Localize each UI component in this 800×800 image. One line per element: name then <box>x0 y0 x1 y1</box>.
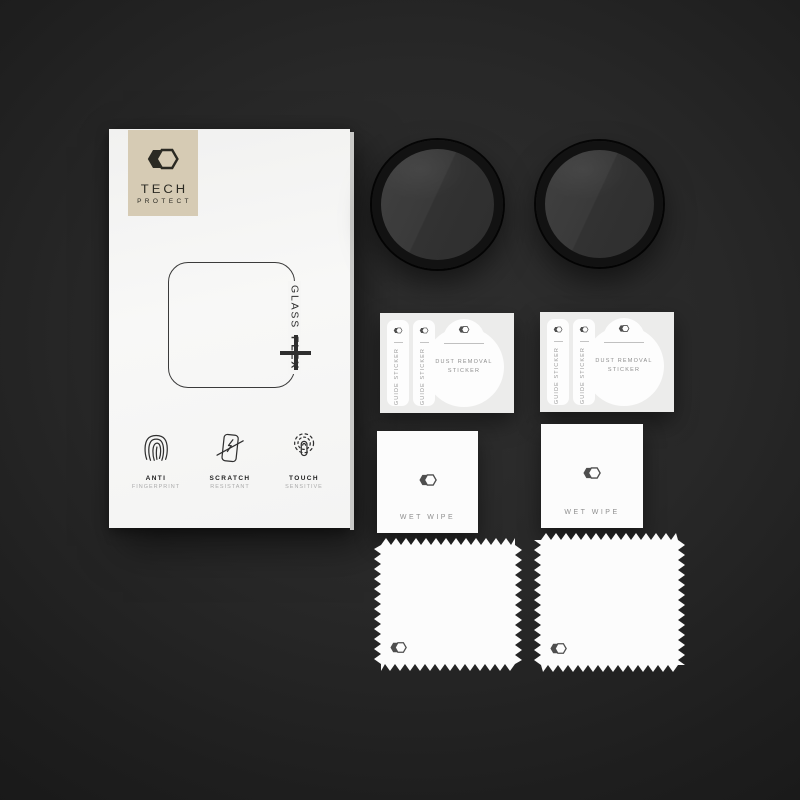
guide-sticker-label: GUIDE STICKER <box>555 347 561 404</box>
glass-protector-2 <box>536 141 663 267</box>
hexagon-icon <box>389 639 408 656</box>
sticker-sheet-2: GUIDE STICKER GUIDE STICKER DUST REMOVAL… <box>540 312 674 412</box>
hexagon-icon <box>553 325 563 334</box>
microfiber-cloth-1 <box>374 538 522 671</box>
microfiber-cloth-2 <box>534 533 685 672</box>
hexagon-icon <box>618 323 630 334</box>
fingerprint-icon <box>142 431 170 465</box>
feature-scratch-resistant: SCRATCH RESISTANT <box>195 431 265 490</box>
divider-line <box>604 342 644 343</box>
touch-sensitive-icon <box>289 431 319 465</box>
sticker-sheet-1: GUIDE STICKER GUIDE STICKER DUST REMOVAL… <box>380 313 514 413</box>
watch-screen-outline <box>168 262 295 388</box>
product-name-glass: GLASS <box>289 285 301 329</box>
scratch-resistant-icon <box>215 431 245 465</box>
feature-subtitle: FINGERPRINT <box>121 484 191 490</box>
product-photo-scene: TECH PROTECT GLASSFLEX ANTI FINGERPRINT <box>0 0 800 800</box>
feature-title: ANTI <box>121 475 191 482</box>
dust-removal-sticker: DUST REMOVAL STICKER <box>417 319 511 407</box>
brand-hexagon-icon <box>145 143 181 175</box>
dust-removal-label-line2: STICKER <box>577 367 671 373</box>
dust-removal-sticker: DUST REMOVAL STICKER <box>577 318 671 406</box>
guide-sticker: GUIDE STICKER <box>387 320 409 406</box>
feature-title: SCRATCH <box>195 475 265 482</box>
divider-line <box>554 341 563 342</box>
feature-subtitle: RESISTANT <box>195 484 265 490</box>
feature-anti-fingerprint: ANTI FINGERPRINT <box>121 431 191 490</box>
wet-wipe-label: WET WIPE <box>377 514 478 521</box>
wet-wipe-label: WET WIPE <box>541 509 643 516</box>
brand-name-line2: PROTECT <box>128 198 198 205</box>
glass-protector-1 <box>372 140 503 269</box>
wet-wipe-2: WET WIPE <box>541 424 643 528</box>
brand-name-line1: TECH <box>128 181 198 195</box>
hexagon-icon <box>582 464 602 482</box>
divider-line <box>394 342 403 343</box>
plus-icon <box>280 335 311 370</box>
guide-sticker: GUIDE STICKER <box>547 319 569 405</box>
dust-removal-label-line1: DUST REMOVAL <box>417 359 511 365</box>
guide-sticker-label: GUIDE STICKER <box>395 348 401 405</box>
feature-touch-sensitive: TOUCH SENSITIVE <box>269 431 339 490</box>
brand-logo-badge: TECH PROTECT <box>128 130 198 216</box>
hexagon-icon <box>549 640 568 657</box>
product-box: TECH PROTECT GLASSFLEX ANTI FINGERPRINT <box>109 129 350 528</box>
feature-title: TOUCH <box>269 475 339 482</box>
hexagon-icon <box>393 326 403 335</box>
dust-removal-label-line1: DUST REMOVAL <box>577 358 671 364</box>
hexagon-icon <box>458 324 470 335</box>
feature-subtitle: SENSITIVE <box>269 484 339 490</box>
feature-icons-row: ANTI FINGERPRINT SCRATCH RESISTANT <box>121 431 339 490</box>
hexagon-icon <box>418 471 438 489</box>
wet-wipe-1: WET WIPE <box>377 431 478 533</box>
dust-removal-label-line2: STICKER <box>417 368 511 374</box>
divider-line <box>444 343 484 344</box>
